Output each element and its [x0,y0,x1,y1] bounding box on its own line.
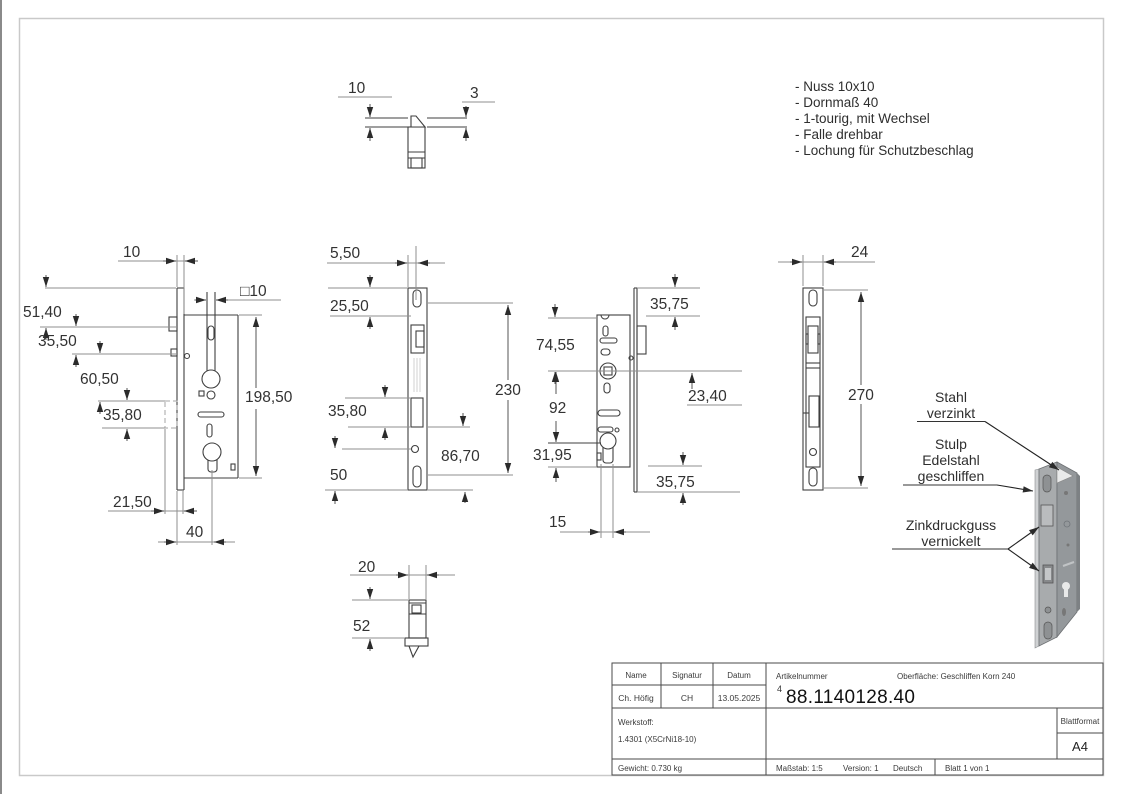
plate-edge-highlight [1035,469,1039,648]
dim-top-3: 3 [470,85,479,102]
dim-side-5140: 51,40 [23,304,62,321]
dim-back-15: 15 [549,514,566,531]
note-item: - Nuss 10x10 [795,79,875,94]
dim-bottom-20: 20 [358,559,376,576]
tb-surface: Oberfläche: Geschliffen Korn 240 [897,672,1016,681]
dim-side-10: 10 [123,244,141,261]
callout-steel-line1: Stahl [935,389,967,405]
dim-side-6050: 60,50 [80,371,119,388]
callout-zinc-line1: Zinkdruckguss [906,517,996,533]
dim-face-3580: 35,80 [328,403,367,420]
iso-latch-opening [1041,505,1053,526]
tb-article-label: Artikelnummer [776,672,828,681]
tb-sheet: Blatt 1 von 1 [945,764,990,773]
tb-weight: Gewicht: 0.730 kg [618,764,682,773]
tb-article-number: 88.1140128.40 [786,687,915,708]
dim-strike-24: 24 [851,244,869,261]
tb-signature-label: Signatur [672,671,702,680]
dim-face-230: 230 [495,382,521,399]
window-edge [0,0,2,794]
dim-side-40: 40 [186,524,204,541]
tb-version: Version: 1 [843,764,879,773]
iso-lock-case [1057,462,1077,637]
dim-back-92: 92 [549,400,566,417]
dim-side-2150: 21,50 [113,494,152,511]
dim-side-sq10: □10 [240,283,267,300]
dim-face-50: 50 [330,467,348,484]
tb-material-label: Werkstoff: [618,718,654,727]
tb-signature-value: CH [681,693,693,703]
tb-material-value: 1.4301 (X5CrNi18-10) [618,735,697,744]
tb-language: Deutsch [893,764,922,773]
dim-bottom-52: 52 [353,618,370,635]
drawing-canvas: 10 3 - Nuss 10x10 - Dornmaß 40 - 1-touri… [0,0,1123,794]
dim-back-7455: 74,55 [536,337,575,354]
callout-stulp-line3: geschliffen [918,468,985,484]
dim-face-2550: 25,50 [330,298,369,315]
dim-side-3550: 35,50 [38,333,77,350]
note-item: - 1-tourig, mit Wechsel [795,111,930,126]
dim-back-2340: 23,40 [688,388,727,405]
tb-name-value: Ch. Höfig [618,693,654,703]
tb-name-label: Name [625,671,647,680]
tb-date-value: 13.05.2025 [718,693,761,703]
tb-scale: Maßstab: 1:5 [776,764,823,773]
note-item: - Dornmaß 40 [795,95,878,110]
callout-stulp-line2: Edelstahl [922,452,980,468]
note-item: - Lochung für Schutzbeschlag [795,143,974,158]
dim-strike-270: 270 [848,387,874,404]
callout-zinc-line2: vernickelt [921,533,980,549]
tb-date-label: Datum [727,671,751,680]
dim-top-10: 10 [348,80,366,97]
dim-side-3580: 35,80 [103,407,142,424]
tb-sheet-format-value: A4 [1072,739,1088,754]
dim-face-550: 5,50 [330,245,361,262]
iso-case-edge [1077,473,1080,612]
callout-steel-line2: verzinkt [927,405,975,421]
dim-back-3575-top: 35,75 [650,296,689,313]
dim-side-19850: 198,50 [245,389,293,406]
callout-stulp-line1: Stulp [935,436,967,452]
dim-back-3195: 31,95 [533,447,572,464]
tb-sheet-format-label: Blattformat [1061,717,1100,726]
tb-article-prefix: 4 [777,684,782,694]
dim-face-8670: 86,70 [441,448,480,465]
note-item: - Falle drehbar [795,127,883,142]
dim-back-3575-bottom: 35,75 [656,474,695,491]
cad-sheet: 10 3 - Nuss 10x10 - Dornmaß 40 - 1-touri… [0,0,1123,794]
